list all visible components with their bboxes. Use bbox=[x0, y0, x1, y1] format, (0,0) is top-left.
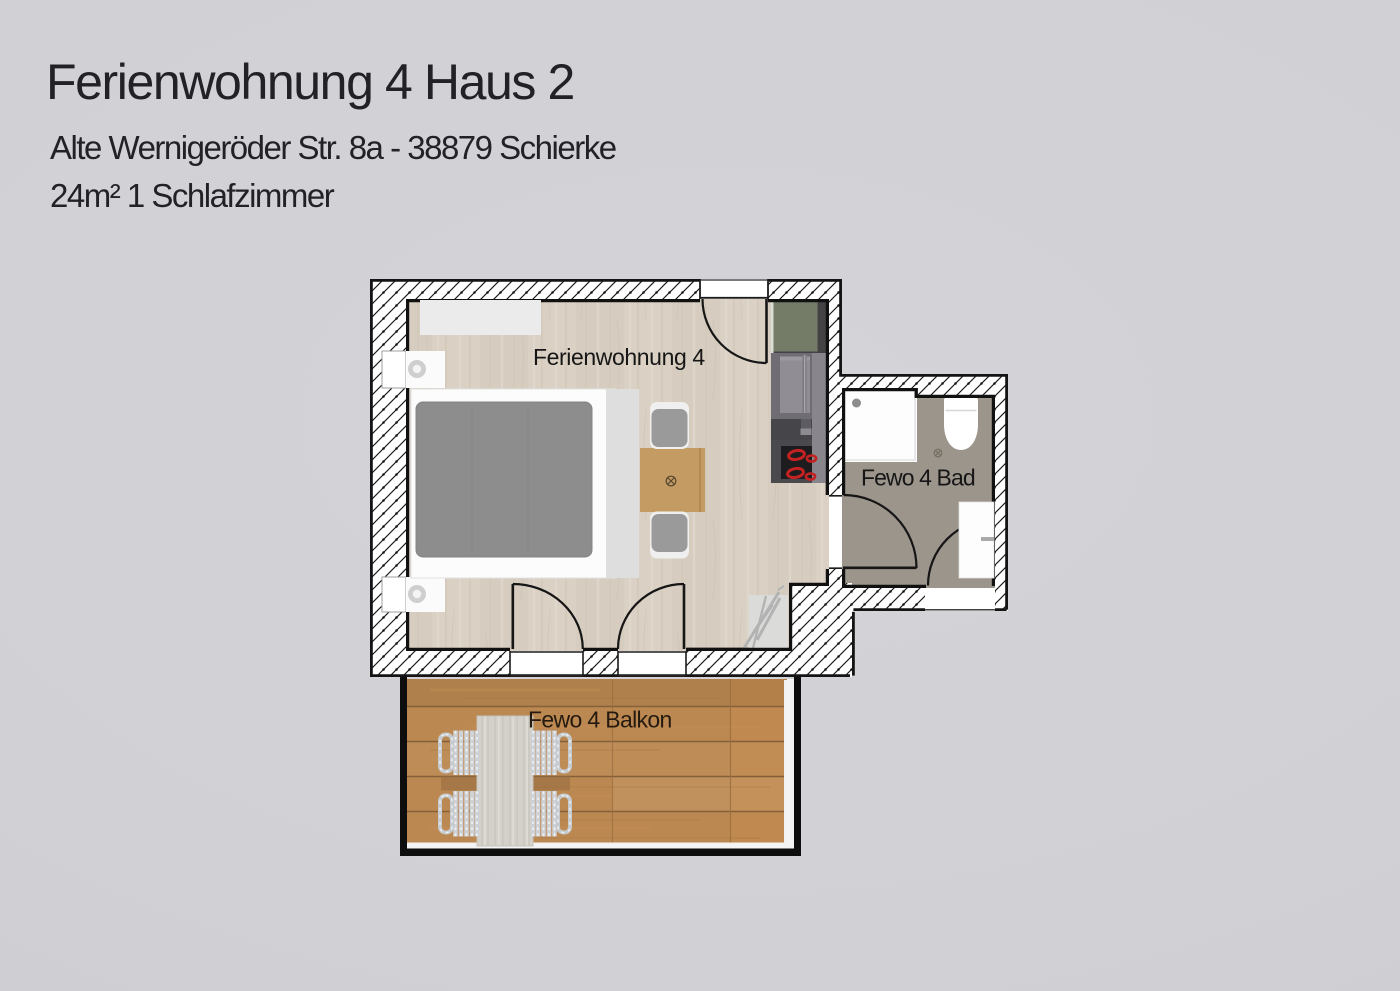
svg-text:Fewo 4 Balkon: Fewo 4 Balkon bbox=[528, 707, 672, 733]
svg-text:Ferienwohnung 4: Ferienwohnung 4 bbox=[533, 344, 705, 370]
svg-text:Fewo 4 Bad: Fewo 4 Bad bbox=[861, 465, 975, 491]
